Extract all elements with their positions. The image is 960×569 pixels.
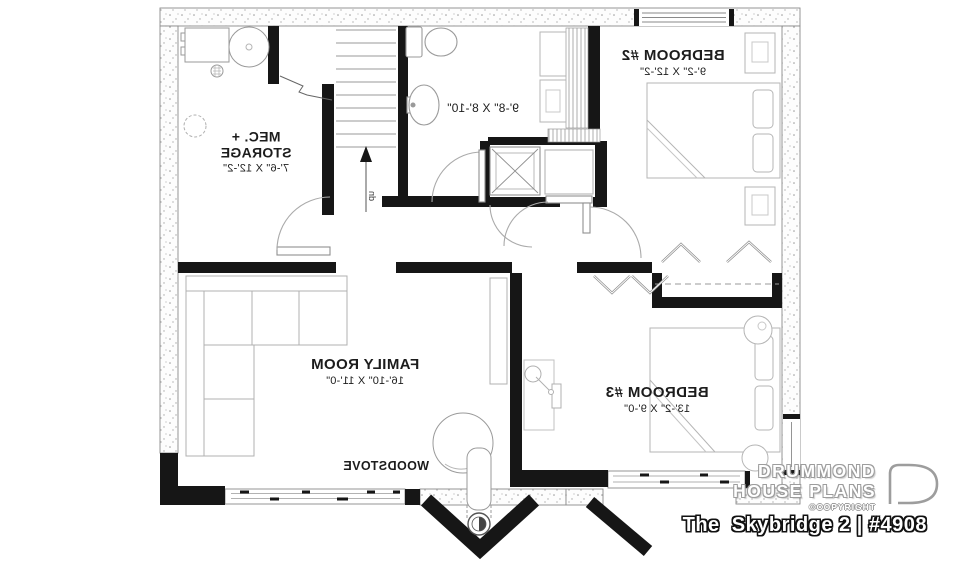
room-name: FAMILY ROOM — [311, 356, 420, 373]
bedroom3-furniture — [524, 284, 780, 471]
media-unit — [490, 278, 507, 384]
toilet-bowl — [425, 28, 457, 56]
closet-door-arc — [504, 202, 548, 246]
logo-text-line1: DRUMMOND — [656, 462, 876, 482]
logo-text-line2: HOUSE PLANS — [656, 482, 876, 502]
staircase — [280, 30, 396, 212]
toilet-tank — [406, 27, 422, 57]
linen-shelves — [548, 129, 600, 142]
bed3-pillow — [755, 386, 773, 430]
drummond-d-icon — [882, 458, 940, 510]
room-name: STORAGE — [220, 145, 291, 161]
room-name: BEDROOM #3 — [605, 384, 708, 401]
window-top — [634, 9, 734, 26]
window-band-family — [225, 489, 420, 505]
hall-door-arc — [490, 205, 532, 247]
plan-title: The Skybridge 2 | #4908 — [683, 514, 927, 537]
room-label-mec-storage: MEC. + STORAGE 7'-6" X 12'-2" — [220, 129, 291, 176]
corner-wall-bottom-left — [160, 453, 225, 505]
sump-pit — [184, 115, 206, 137]
room-name: BEDROOM #2 — [621, 47, 724, 64]
bed2-pillow — [753, 134, 773, 172]
washer — [185, 28, 229, 62]
angled-wall — [590, 502, 648, 551]
label-stairs-up: up — [366, 191, 376, 201]
bedroom2-door-arc — [590, 207, 641, 258]
drummond-logo: DRUMMOND HOUSE PLANS ©COPYRIGHT — [656, 462, 876, 512]
room-label-bath: 9'-8" X 8'-10" — [447, 100, 519, 116]
round-table — [744, 316, 772, 344]
stair-up-arrow — [360, 146, 372, 162]
closet-box — [545, 150, 593, 194]
copyright-label: ©COPYRIGHT — [656, 502, 876, 512]
shower-unit — [490, 147, 540, 195]
desk-and-chair — [524, 360, 561, 430]
room-dims: 9'-8" X 8'-10" — [447, 102, 519, 116]
built-in-shelving — [566, 28, 588, 128]
room-label-bedroom3: BEDROOM #3 13'-2" X 9'-0" — [605, 384, 708, 416]
floor-plan-page: MEC. + STORAGE 7'-6" X 12'-2" 9'-8" X 8'… — [0, 0, 960, 569]
room-label-family-room: FAMILY ROOM 16'-10" X 11'-0" — [311, 356, 420, 388]
room-dims: 9'-2" X 12'-2" — [621, 66, 724, 79]
stove-pipe — [467, 448, 491, 510]
bath-door-arc — [432, 152, 482, 202]
room-label-bedroom2: BEDROOM #2 9'-2" X 12'-2" — [621, 47, 724, 79]
room-dims: 16'-10" X 11'-0" — [311, 375, 420, 388]
room-name: MEC. + — [220, 129, 291, 145]
label-woodstove: WOODSTOVE — [343, 459, 429, 473]
mec-appliances — [181, 27, 269, 137]
bed2-pillow — [753, 90, 773, 128]
room-dims: 13'-2" X 9'-0" — [605, 403, 708, 416]
room-dims: 7'-6" X 12'-2" — [220, 163, 291, 176]
